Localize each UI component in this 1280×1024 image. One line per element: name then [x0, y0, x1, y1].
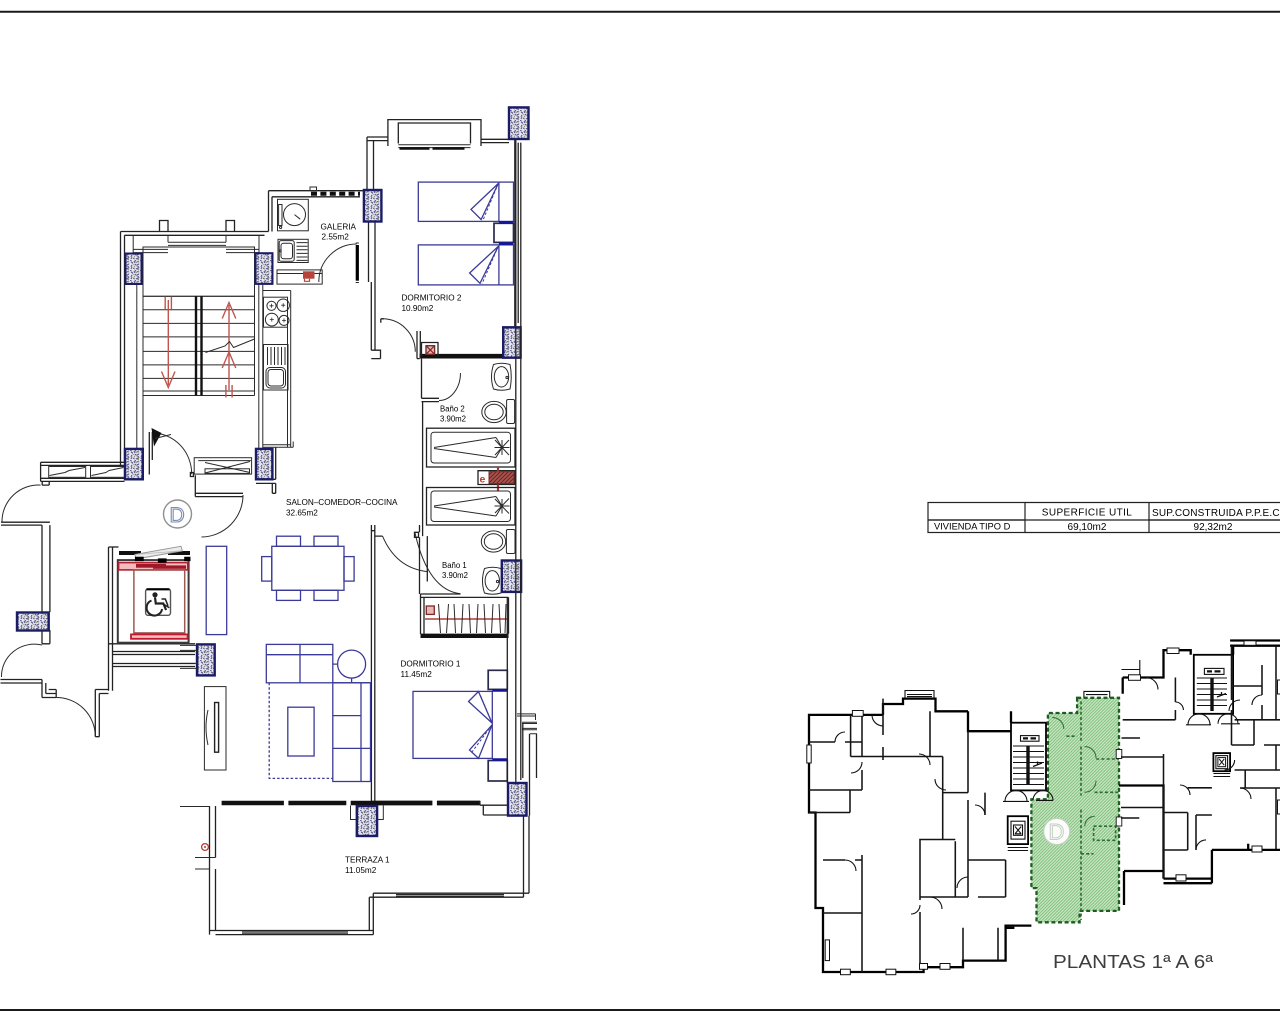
- svg-text:11.05m2: 11.05m2: [345, 866, 377, 875]
- svg-text:TERRAZA 1: TERRAZA 1: [345, 856, 390, 865]
- svg-text:92,32m2: 92,32m2: [1194, 522, 1233, 533]
- svg-text:SUP.CONSTRUIDA P.P.E.C: SUP.CONSTRUIDA P.P.E.C: [1152, 508, 1280, 519]
- svg-text:PLANTAS 1ª A 6ª: PLANTAS 1ª A 6ª: [1053, 951, 1213, 972]
- svg-text:GALERIA: GALERIA: [321, 223, 357, 232]
- svg-text:DORMITORIO 1: DORMITORIO 1: [401, 660, 461, 669]
- svg-text:Baño 2: Baño 2: [440, 405, 465, 414]
- svg-text:69,10m2: 69,10m2: [1068, 522, 1107, 533]
- svg-text:e: e: [480, 474, 486, 486]
- svg-text:D: D: [170, 504, 185, 527]
- svg-text:DORMITORIO 2: DORMITORIO 2: [402, 294, 462, 303]
- svg-text:SALON–COMEDOR–COCINA: SALON–COMEDOR–COCINA: [286, 498, 398, 507]
- svg-text:32.65m2: 32.65m2: [286, 509, 318, 518]
- svg-text:SUPERFICIE UTIL: SUPERFICIE UTIL: [1042, 508, 1132, 519]
- svg-text:2.55m2: 2.55m2: [322, 233, 350, 242]
- svg-text:D: D: [1049, 820, 1065, 845]
- svg-text:11.45m2: 11.45m2: [401, 670, 433, 679]
- svg-text:10.90m2: 10.90m2: [402, 304, 434, 313]
- svg-text:3.90m2: 3.90m2: [442, 571, 468, 580]
- svg-text:3.90m2: 3.90m2: [440, 415, 466, 424]
- svg-text:VIVIENDA TIPO D: VIVIENDA TIPO D: [934, 522, 1011, 532]
- svg-text:Baño 1: Baño 1: [442, 561, 467, 570]
